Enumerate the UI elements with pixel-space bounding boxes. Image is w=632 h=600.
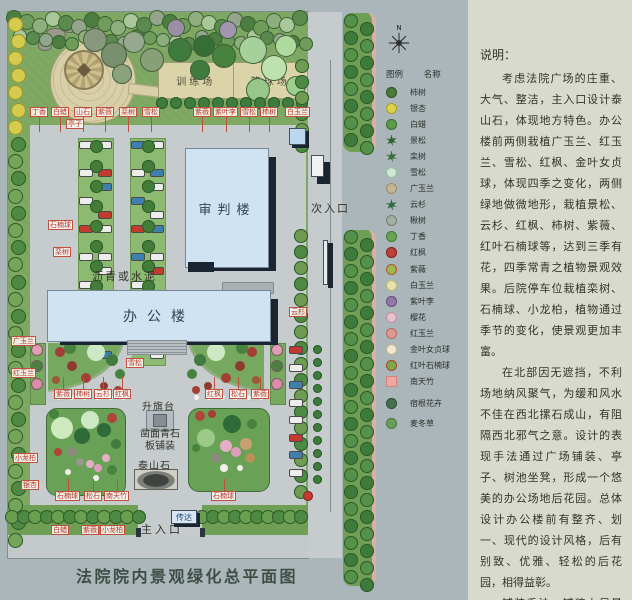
secondary-gate-pier-shadow xyxy=(328,243,333,288)
legend-symbol-header: 图例 xyxy=(386,70,403,80)
taishan-stone-label: 泰山石 xyxy=(138,457,171,472)
legend-item: 樱花 xyxy=(386,309,450,325)
legend-item-label: 景松 xyxy=(410,135,426,146)
taishan-stone xyxy=(134,469,178,490)
legend-item: 红玉兰 xyxy=(386,325,450,341)
legend-item-label: 紫叶李 xyxy=(410,296,434,307)
reception-label: 传达 xyxy=(176,512,192,523)
legend-item-label: 雪松 xyxy=(410,167,426,178)
legend-item: 广玉兰 xyxy=(386,181,450,197)
柿树-icon xyxy=(386,87,397,98)
白玉兰-icon xyxy=(386,280,397,291)
南天竹-icon xyxy=(386,376,397,387)
legend-item: 丁香 xyxy=(386,229,450,245)
stone-paving-line1: 凿面青石 xyxy=(130,429,190,441)
legend-item: 栾树 xyxy=(386,148,450,164)
白蜡-icon xyxy=(386,119,397,130)
legend-item: 云杉 xyxy=(386,197,450,213)
street-tree-median-north xyxy=(343,13,376,152)
legend-item: 金叶女贞球 xyxy=(386,342,450,358)
flag-platform-core xyxy=(153,414,167,427)
legend-item: 南天竹 xyxy=(386,374,450,390)
street-tree-median-south xyxy=(343,230,376,586)
red-photinia-ball xyxy=(303,491,313,501)
legend-item-label: 南天竹 xyxy=(410,376,434,387)
office-building-label: 办公楼 xyxy=(123,306,195,326)
legend-item-label: 丁香 xyxy=(410,231,426,242)
side-bed-west xyxy=(30,343,46,405)
guard-booth xyxy=(311,155,324,177)
notes-paragraph: 在北部因无遮挡，不利场地纳风聚气，为缓和风水不佳在西北摞石成山，有阻隔西北邪气之… xyxy=(480,363,622,594)
麦冬草-icon xyxy=(386,418,397,429)
legend-item-label: 柿树 xyxy=(410,87,426,98)
legend-item-label: 红玉兰 xyxy=(410,328,434,339)
south-sidewalk xyxy=(8,535,308,558)
栾树-icon xyxy=(386,151,397,162)
east-road xyxy=(308,12,342,558)
compass-icon xyxy=(388,32,410,54)
雪松-icon xyxy=(386,167,397,178)
legend-item-label: 麦冬草 xyxy=(410,418,434,429)
flag-platform-label: 升旗台 xyxy=(142,398,175,413)
红叶石楠球-icon xyxy=(386,360,397,371)
asphalt-note: 沥青或水泥 xyxy=(92,268,157,284)
legend-item: 红枫 xyxy=(386,245,450,261)
mountain-rock xyxy=(62,22,78,33)
legend-item-label: 红枫 xyxy=(410,247,426,258)
云杉-icon xyxy=(386,199,397,210)
legend-item-label: 广玉兰 xyxy=(410,183,434,194)
page-title: 法院院内景观绿化总平面图 xyxy=(76,563,298,587)
reception-booth: 传达 xyxy=(171,510,197,524)
legend-item: 麦冬草 xyxy=(386,416,450,432)
secondary-entrance-label: 次入口 xyxy=(311,200,350,216)
stone-paving-line2: 板铺装 xyxy=(130,441,190,453)
legend-item-label: 宿根花卉 xyxy=(410,398,442,409)
trial-building: 审判楼 xyxy=(185,148,269,268)
legend-list: 柿树银杏白蜡景松栾树雪松广玉兰云杉楸树丁香红枫紫薇白玉兰紫叶李樱花红玉兰金叶女贞… xyxy=(386,84,450,432)
legend-item: 楸树 xyxy=(386,213,450,229)
north-arrow: N xyxy=(386,24,412,58)
楸树-icon xyxy=(386,215,397,226)
legend-item-label: 金叶女贞球 xyxy=(410,344,450,355)
legend-item: 紫薇 xyxy=(386,261,450,277)
plan-sheet: 训练场 篮球场 审判楼 办公楼 传达 沥青或水泥 次入口 升旗台 凿面青石 板 xyxy=(0,0,632,600)
legend-item-label: 楸树 xyxy=(410,215,426,226)
景松-icon xyxy=(386,135,397,146)
银杏-icon xyxy=(386,103,397,114)
legend-header: 图例 名称 xyxy=(386,68,441,80)
legend-item: 雪松 xyxy=(386,164,450,180)
广玉兰-icon xyxy=(386,183,397,194)
宿根花卉-icon xyxy=(386,398,397,409)
trial-building-label: 审判楼 xyxy=(198,199,255,218)
notes-panel: 说明： 考虑法院广场的庄重、大气、整洁，主入口设计泰山石，体现地方特色。办公楼前… xyxy=(468,0,632,600)
legend-item-label: 白玉兰 xyxy=(410,280,434,291)
office-entrance-steps xyxy=(127,340,187,355)
sports-courts: 训练场 篮球场 xyxy=(158,62,308,99)
entry-bed-west xyxy=(46,408,126,496)
legend-item-label: 樱花 xyxy=(410,312,426,323)
utility-box xyxy=(289,128,306,145)
legend-item-label: 紫薇 xyxy=(410,264,426,275)
金叶女贞球-icon xyxy=(386,344,397,355)
樱花-icon xyxy=(386,312,397,323)
legend-item: 景松 xyxy=(386,132,450,148)
legend-item-label: 云杉 xyxy=(410,199,426,210)
notes-paragraph: 考虑法院广场的庄重、大气、整洁，主入口设计泰山石，体现地方特色。办公楼前两侧栽植… xyxy=(480,69,622,363)
notes-paragraph: 铺装手法：铺装上尽量使用整洁、大气的铺装材料，整个广场的铺装使用凿面青石板，设计… xyxy=(480,594,622,600)
office-building: 办公楼 xyxy=(47,290,271,342)
legend-item: 白蜡 xyxy=(386,116,450,132)
trial-building-shadow xyxy=(188,262,214,272)
legend-item: 红叶石楠球 xyxy=(386,358,450,374)
stone-paving-label: 凿面青石 板铺装 xyxy=(130,429,190,452)
红枫-icon xyxy=(386,247,397,258)
notes-heading: 说明： xyxy=(480,46,622,63)
legend-item-label: 红叶石楠球 xyxy=(410,360,450,371)
紫叶李-icon xyxy=(386,296,397,307)
gate-pier xyxy=(200,528,205,537)
legend-item-label: 银杏 xyxy=(410,103,426,114)
legend-name-header: 名称 xyxy=(424,70,441,80)
entry-bed-east xyxy=(188,408,270,492)
legend-item: 宿根花卉 xyxy=(386,396,450,412)
legend-item: 银杏 xyxy=(386,100,450,116)
north-label: N xyxy=(386,24,412,32)
红玉兰-icon xyxy=(386,328,397,339)
side-bed-east xyxy=(270,343,286,405)
mountain-rock xyxy=(38,40,52,51)
legend-item-label: 白蜡 xyxy=(410,119,426,130)
legend-item: 紫叶李 xyxy=(386,293,450,309)
紫薇-icon xyxy=(386,264,397,275)
training-field-label: 训练场 xyxy=(159,63,233,98)
legend-item-label: 栾树 xyxy=(410,151,426,162)
丁香-icon xyxy=(386,231,397,242)
legend-item: 白玉兰 xyxy=(386,277,450,293)
legend-item: 柿树 xyxy=(386,84,450,100)
basketball-court-label: 篮球场 xyxy=(233,63,308,98)
